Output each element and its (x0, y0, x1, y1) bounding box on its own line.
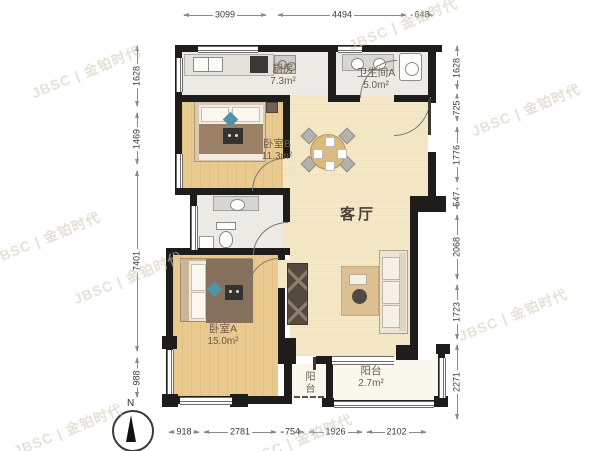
wall-segment (182, 95, 290, 102)
sliding-door-icon (332, 356, 394, 365)
dimension-label: 2271 (453, 370, 462, 394)
wall-segment (278, 338, 296, 364)
wall-segment (328, 52, 336, 102)
dimension-label: 1628 (133, 64, 142, 88)
dimension-label: 3099 (213, 11, 237, 20)
dimension-label: 4494 (330, 11, 354, 20)
sofa-back (399, 253, 406, 331)
room-name: 卫生间A (344, 67, 408, 80)
bedroom-b-label: 卧室B 11.3m² (248, 138, 306, 163)
room-name: 厨房 (255, 63, 311, 76)
dimension-label: 988 (133, 368, 142, 387)
bed-throw (225, 285, 243, 300)
dimension-bottom-4: 1926 (308, 426, 363, 438)
pillow (191, 292, 206, 319)
dimension-label: 1926 (323, 428, 347, 437)
dimension-bottom-5: 2102 (366, 426, 427, 438)
wall-segment (410, 212, 418, 345)
tray (349, 274, 367, 285)
dimension-label: 1628 (453, 55, 462, 79)
sink-divider (208, 58, 209, 71)
toilet-bowl-icon (219, 231, 233, 248)
dimension-right-6: 1723 (451, 284, 463, 340)
dimension-label: 2102 (384, 428, 408, 437)
sofa-cushion (382, 281, 400, 304)
wall-segment (428, 52, 436, 97)
dimension-top-1: 3099 (183, 9, 267, 21)
dimension-label: 918 (174, 428, 193, 437)
sofa-cushion (382, 305, 400, 328)
sink-icon (230, 199, 245, 211)
compass-north-label: N (127, 398, 134, 409)
wall-segment (428, 152, 436, 200)
wall-segment (336, 95, 360, 102)
toilet-tank-icon (216, 222, 236, 230)
dimension-bottom-2: 2781 (203, 426, 277, 438)
dimension-top-2: 4494 (277, 9, 407, 21)
bed-bedroom-a (180, 258, 252, 322)
compass-needle-icon (126, 415, 136, 442)
living-room-label: 客厅 (340, 203, 376, 224)
bed-throw (223, 128, 243, 144)
sofa-cushion (382, 257, 400, 280)
plate-icon (325, 137, 335, 147)
watermark: JBSC | 金铂时代 (28, 41, 143, 103)
wall-segment (278, 288, 285, 340)
room-area: 11.3m² (248, 151, 306, 163)
room-name: 阳台 (340, 365, 402, 378)
wall-pillar (230, 394, 248, 407)
window-icon (439, 358, 446, 398)
dimension-right-4: 547 (451, 187, 463, 210)
room-area: 15.0m² (194, 336, 252, 348)
dimension-right-3: 1776 (451, 126, 463, 183)
kitchen-sink (193, 57, 223, 72)
floor-plan: 厨房 7.3m² 卫生间A 5.0m² 卧室B 11.3m² 客厅 卧室A 15… (0, 0, 600, 451)
dimension-label: 1469 (133, 126, 142, 150)
wardrobe (287, 263, 308, 325)
dimension-left-1: 1628 (131, 45, 143, 107)
dimension-right-1: 1628 (451, 45, 463, 90)
window-icon (198, 46, 258, 53)
dimension-label: 547 (453, 189, 462, 208)
bathroom-a-label: 卫生间A 5.0m² (344, 67, 408, 92)
dimension-left-4: 988 (131, 357, 143, 398)
small-bath-vanity (213, 196, 259, 211)
window-icon (180, 397, 232, 405)
dimension-right-2: 725 (451, 93, 463, 122)
dimension-label: 754 (283, 428, 302, 437)
bedroom-a-label: 卧室A 15.0m² (194, 323, 252, 348)
dimension-left-2: 1469 (131, 112, 143, 165)
room-area: 2.7m² (340, 378, 402, 390)
window-icon (338, 46, 362, 53)
dimension-label: 7401 (133, 249, 142, 273)
plate-icon (313, 149, 323, 159)
dimension-top-3: 648 (410, 9, 434, 21)
wall-segment (278, 255, 285, 260)
dimension-label: 1776 (453, 142, 462, 166)
window-icon (191, 206, 198, 250)
room-name: 卧室A (194, 323, 252, 336)
wall-segment (436, 344, 450, 354)
dimension-right-5: 2068 (451, 214, 463, 280)
kitchen-label: 厨房 7.3m² (255, 63, 311, 88)
watermark: JBSC | 金铂时代 (455, 284, 570, 346)
wall-pillar (162, 394, 178, 407)
dimension-label: 2781 (228, 428, 252, 437)
plate-icon (325, 161, 335, 171)
watermark: JBSC | 金铂时代 (468, 79, 583, 141)
dimension-bottom-1: 918 (168, 426, 200, 438)
room-area: 7.3m² (255, 76, 311, 88)
dimension-label: 725 (453, 98, 462, 117)
room-name: 卧室B (248, 138, 306, 151)
dimension-label: 1723 (453, 300, 462, 324)
watermark: JBSC | 金铂时代 (10, 399, 125, 451)
nightstand (266, 102, 278, 113)
dining-table (310, 134, 346, 170)
dimension-left-3: 7401 (131, 170, 143, 352)
window-icon (176, 154, 183, 188)
door-gap-floor (283, 158, 290, 190)
window-icon (334, 401, 434, 408)
wall-segment (410, 196, 446, 212)
dimension-bottom-3: 754 (280, 426, 305, 438)
balcony-label: 阳台 2.7m² (340, 365, 402, 390)
watermark: JBSC | 金铂时代 (0, 207, 104, 269)
wall-segment (396, 345, 418, 360)
window-icon (167, 350, 174, 394)
room-area: 5.0m² (344, 80, 408, 92)
plate-icon (337, 149, 347, 159)
dimension-right-7: 2271 (451, 344, 463, 420)
dimension-label: 2068 (453, 235, 462, 259)
coffee-table (352, 289, 367, 304)
window-icon (176, 58, 183, 92)
dimension-label: 648 (412, 11, 431, 20)
entry-door-leaf (428, 99, 431, 135)
wall-pillar (162, 336, 177, 349)
small-balcony-label: 阳台 (302, 368, 314, 398)
wall-segment (322, 398, 334, 407)
pillow (191, 264, 206, 291)
sofa (379, 250, 408, 334)
